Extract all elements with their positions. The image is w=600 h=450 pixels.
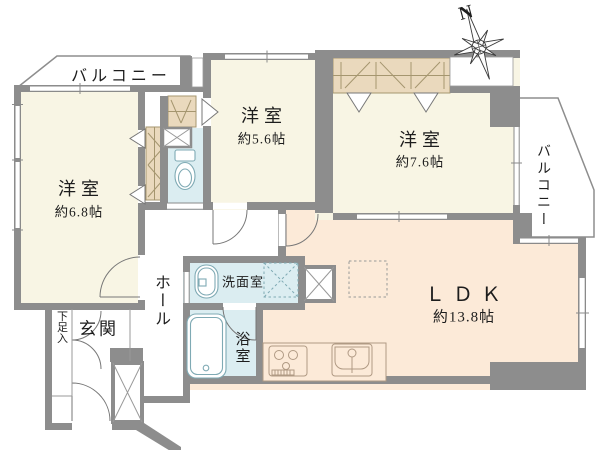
washbasin-icon — [195, 265, 218, 298]
ldk-label: ＬＤＫ — [425, 285, 509, 305]
door-arc — [213, 210, 247, 244]
kitchen — [263, 343, 386, 381]
bedroom-right-label: 洋室 — [399, 131, 445, 149]
ldk-size: 約13.8帖 — [433, 311, 495, 326]
entrance-label: 玄関 — [79, 321, 119, 338]
bathtub-icon — [187, 314, 226, 378]
balcony-right-label: バルコニー — [535, 144, 549, 229]
toilet-icon — [175, 150, 195, 190]
bedroom-left-size: 約6.8帖 — [55, 205, 104, 219]
washroom-label: 洗面室 — [222, 276, 264, 289]
balcony-top-label: バルコニー — [71, 69, 171, 85]
void-pocket — [192, 58, 203, 87]
door-arc — [72, 340, 101, 369]
bedroom-middle-size: 約5.6帖 — [238, 132, 287, 146]
bathroom-label: 浴室 — [234, 331, 249, 365]
bedroom-middle-label: 洋室 — [241, 107, 287, 125]
floor-plan: バルコニー 洋室 約6.8帖 洋室 約5.6帖 洋室 約7.6帖 ＬＤＫ 約13… — [0, 0, 600, 450]
hall-label: ホール — [152, 274, 168, 328]
shoe-storage-label: 下足入 — [56, 311, 67, 344]
bedroom-left-label: 洋室 — [58, 180, 104, 198]
bedroom-right-size: 約7.6帖 — [396, 155, 445, 169]
door-arc — [72, 383, 110, 421]
